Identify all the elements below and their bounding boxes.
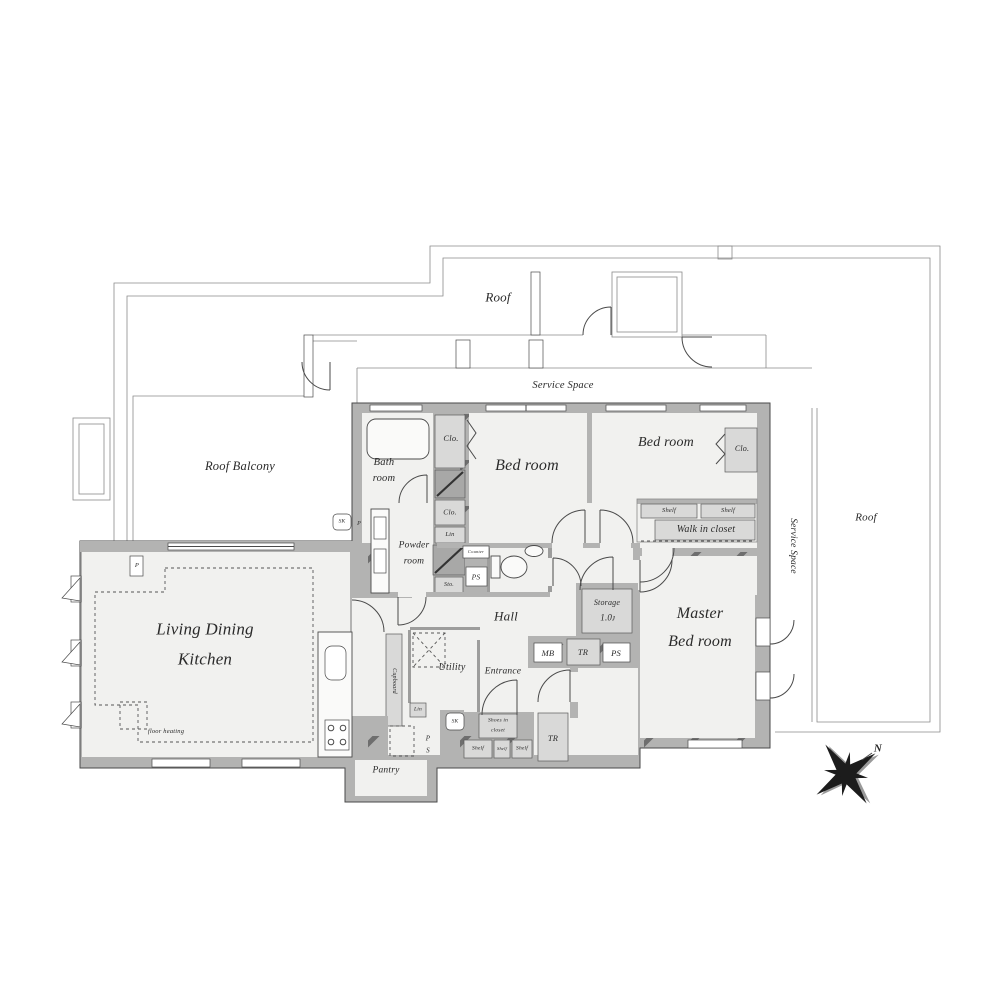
tr-2-label: TR bbox=[548, 734, 558, 743]
service-space-top-label: Service Space bbox=[532, 381, 593, 392]
service-space-right-label: Service Space bbox=[787, 518, 797, 574]
bed-room-1-label: Bed room bbox=[495, 458, 559, 474]
utility-label: Utility bbox=[439, 663, 466, 673]
shelf-2-label: Shelf bbox=[721, 508, 735, 515]
entrance-label: Entrance bbox=[485, 667, 521, 677]
hall-label: Hall bbox=[494, 610, 518, 623]
linen-2-label: Lin bbox=[414, 707, 422, 713]
ldk-label-1: Living Dining bbox=[156, 621, 254, 638]
shoes-closet-label-2: closet bbox=[491, 728, 505, 734]
linen-1-label: Lin bbox=[445, 532, 454, 539]
shelf-1-label: Shelf bbox=[662, 508, 676, 515]
toilet-bowl bbox=[501, 556, 527, 578]
floor-heating-label: floor heating bbox=[148, 729, 184, 736]
shelf-4-label: Shelf bbox=[497, 747, 507, 752]
toilet-sink bbox=[525, 546, 543, 557]
shelf-5-label: Shelf bbox=[516, 746, 528, 752]
pantry-label: Pantry bbox=[372, 766, 399, 776]
closet-3-label: Clo. bbox=[443, 508, 457, 516]
toilet-tank bbox=[491, 556, 500, 578]
roof-top-label: Roof bbox=[485, 291, 510, 304]
closet-2-label: Clo. bbox=[735, 445, 749, 453]
pipe-2-label: P bbox=[357, 521, 361, 527]
bath-room-label-1: Bath bbox=[374, 458, 395, 469]
roof-balcony-label: Roof Balcony bbox=[205, 460, 275, 473]
ldk-label-2: Kitchen bbox=[178, 651, 232, 668]
north-label: N bbox=[874, 744, 882, 755]
powder-room-label-1: Powder bbox=[399, 541, 430, 551]
storage-label-1: Storage bbox=[594, 599, 620, 607]
shoes-closet-label-1: Shoes in bbox=[488, 718, 508, 724]
ps-3-label-s: S bbox=[426, 748, 430, 755]
cupboard-label: Cupboard bbox=[391, 668, 397, 694]
sk-2-label: SK bbox=[452, 719, 459, 725]
powder-room-label-2: room bbox=[404, 557, 425, 567]
shelf-3-label: Shelf bbox=[472, 746, 484, 752]
ps-2-label: PS bbox=[611, 649, 621, 658]
storage-small-label: Sto. bbox=[444, 582, 454, 588]
compass-icon bbox=[796, 723, 899, 826]
walk-in-closet-label: Walk in closet bbox=[677, 525, 736, 535]
ps-1-label: PS bbox=[472, 573, 481, 581]
floor-plan-canvas: Roof Roof Roof Balcony Service Space Ser… bbox=[0, 0, 1000, 1000]
master-bed-room-label-1: Master bbox=[677, 606, 724, 622]
roof-right-label: Roof bbox=[855, 513, 877, 524]
master-bed-room-label-2: Bed room bbox=[668, 634, 732, 650]
bed-room-2-label: Bed room bbox=[638, 436, 694, 450]
floor-plan-drawing bbox=[0, 0, 1000, 1000]
counter-label: Counter bbox=[468, 550, 484, 555]
bathtub bbox=[367, 419, 429, 459]
mb-label: MB bbox=[542, 649, 555, 658]
sk-1-label: SK bbox=[339, 519, 346, 525]
bath-room-label-2: room bbox=[373, 474, 396, 485]
tr-1-label: TR bbox=[578, 648, 588, 657]
kitchen-sink bbox=[325, 646, 346, 680]
closet-1-label: Clo. bbox=[443, 434, 458, 443]
pipe-1-label: P bbox=[135, 563, 139, 570]
storage-label-2: 1.0ᴊ bbox=[600, 614, 615, 623]
stove bbox=[325, 720, 349, 750]
ps-3-label-p: P bbox=[426, 736, 430, 743]
